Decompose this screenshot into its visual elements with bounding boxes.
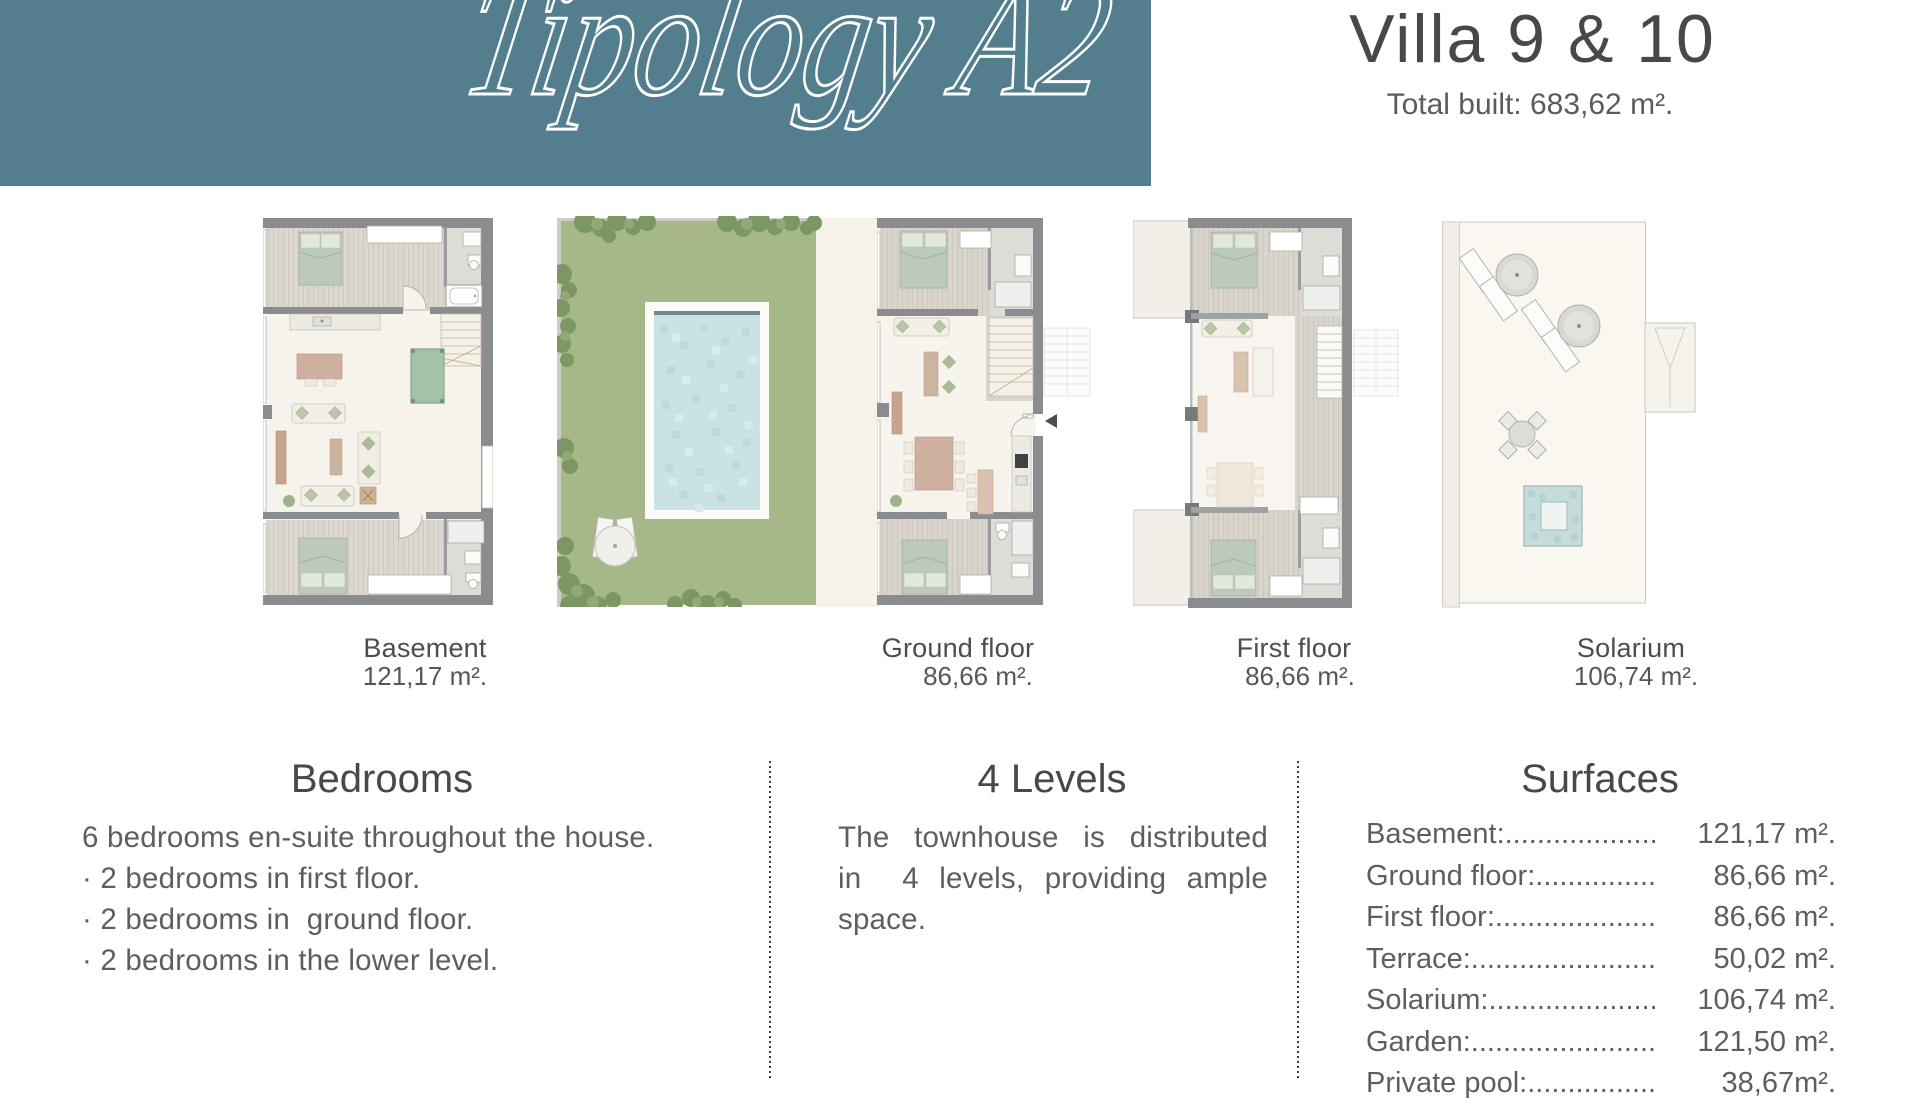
svg-text:Tipology A2: Tipology A2 xyxy=(452,0,1124,130)
